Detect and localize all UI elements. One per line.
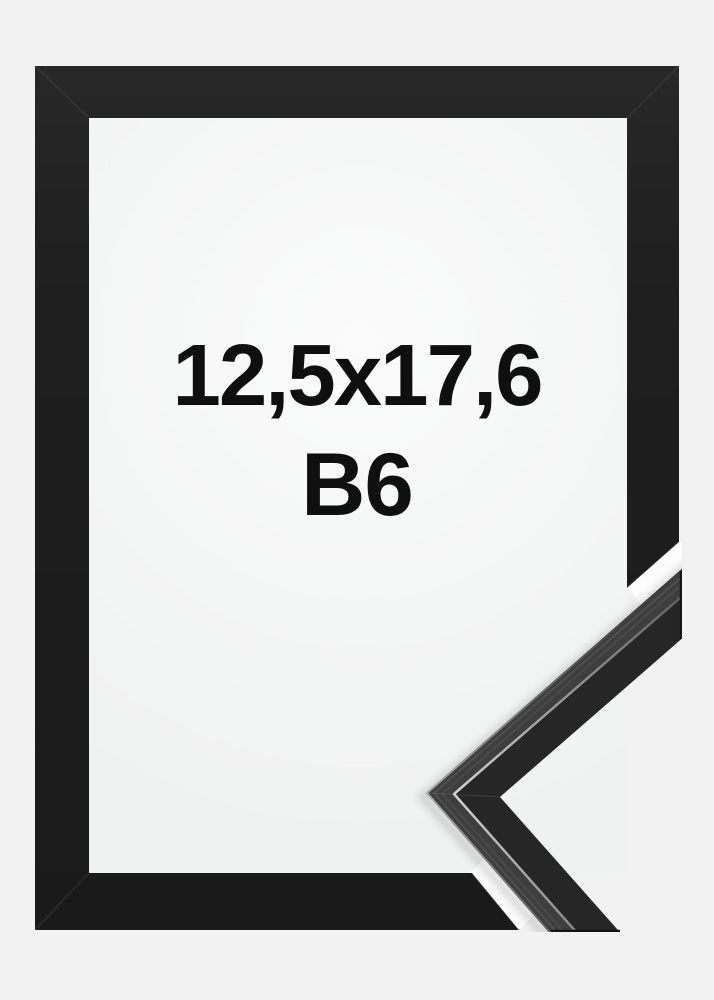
frame-window	[89, 118, 627, 873]
product-photo: 12,5x17,6 B6	[0, 0, 714, 1000]
frame-illustration	[0, 0, 714, 1000]
